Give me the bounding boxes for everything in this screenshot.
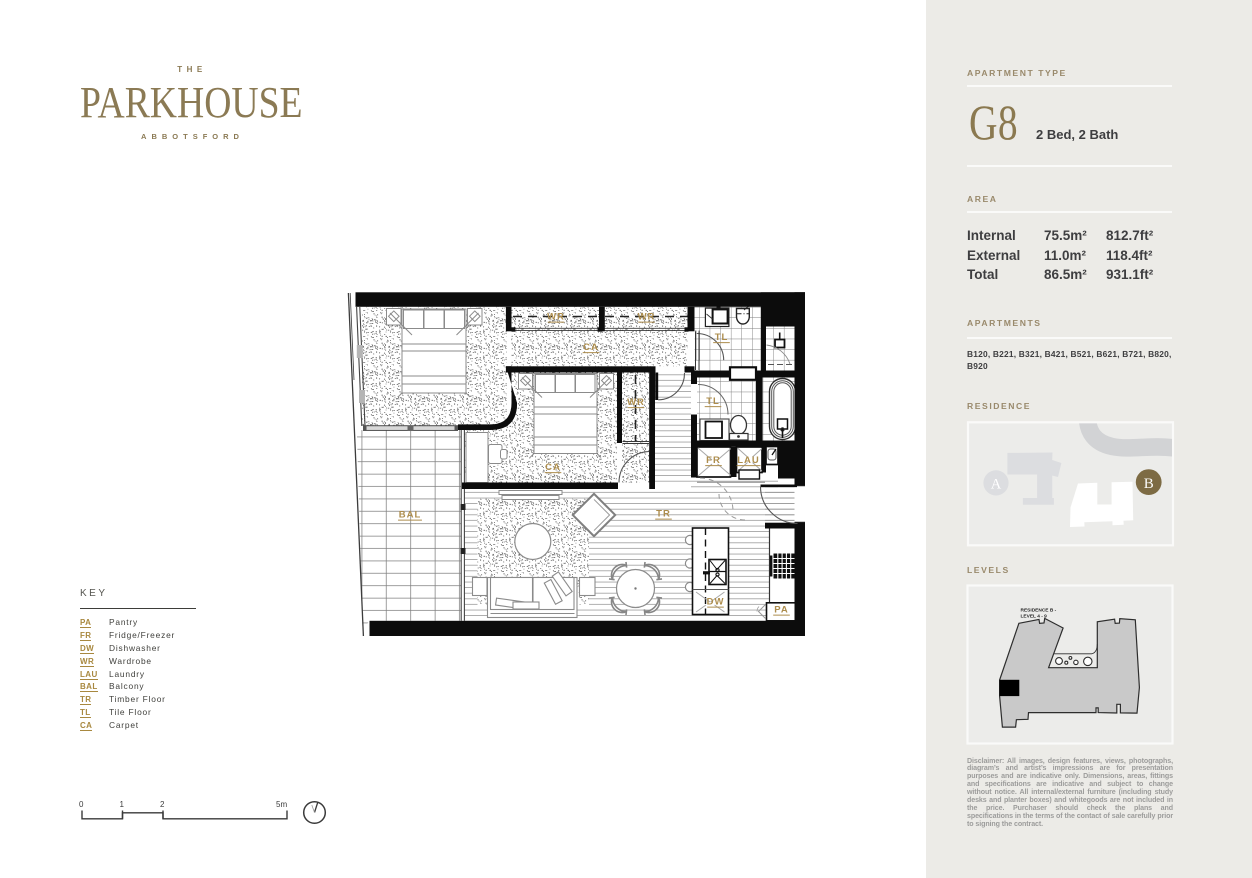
svg-text:2: 2 (160, 800, 165, 809)
svg-text:B: B (1144, 476, 1154, 492)
svg-text:PA: PA (774, 605, 789, 616)
svg-text:LEVEL 4 - 9: LEVEL 4 - 9 (1021, 614, 1048, 620)
svg-text:RESIDENCE B -: RESIDENCE B - (1021, 608, 1057, 614)
svg-text:WR: WR (627, 397, 645, 408)
svg-text:CA: CA (583, 342, 599, 353)
svg-text:FR: FR (706, 455, 721, 466)
svg-text:WR: WR (638, 312, 656, 323)
svg-text:5m: 5m (276, 800, 287, 809)
svg-text:LAU: LAU (737, 455, 760, 466)
svg-text:WR: WR (547, 312, 565, 323)
svg-text:0: 0 (79, 800, 84, 809)
svg-text:TL: TL (715, 332, 729, 343)
svg-text:CA: CA (545, 462, 561, 473)
svg-text:TL: TL (706, 396, 720, 407)
svg-text:TR: TR (656, 509, 671, 520)
svg-text:DW: DW (707, 597, 725, 608)
svg-text:BAL: BAL (399, 510, 422, 521)
svg-text:A: A (991, 477, 1002, 493)
svg-text:1: 1 (120, 800, 125, 809)
